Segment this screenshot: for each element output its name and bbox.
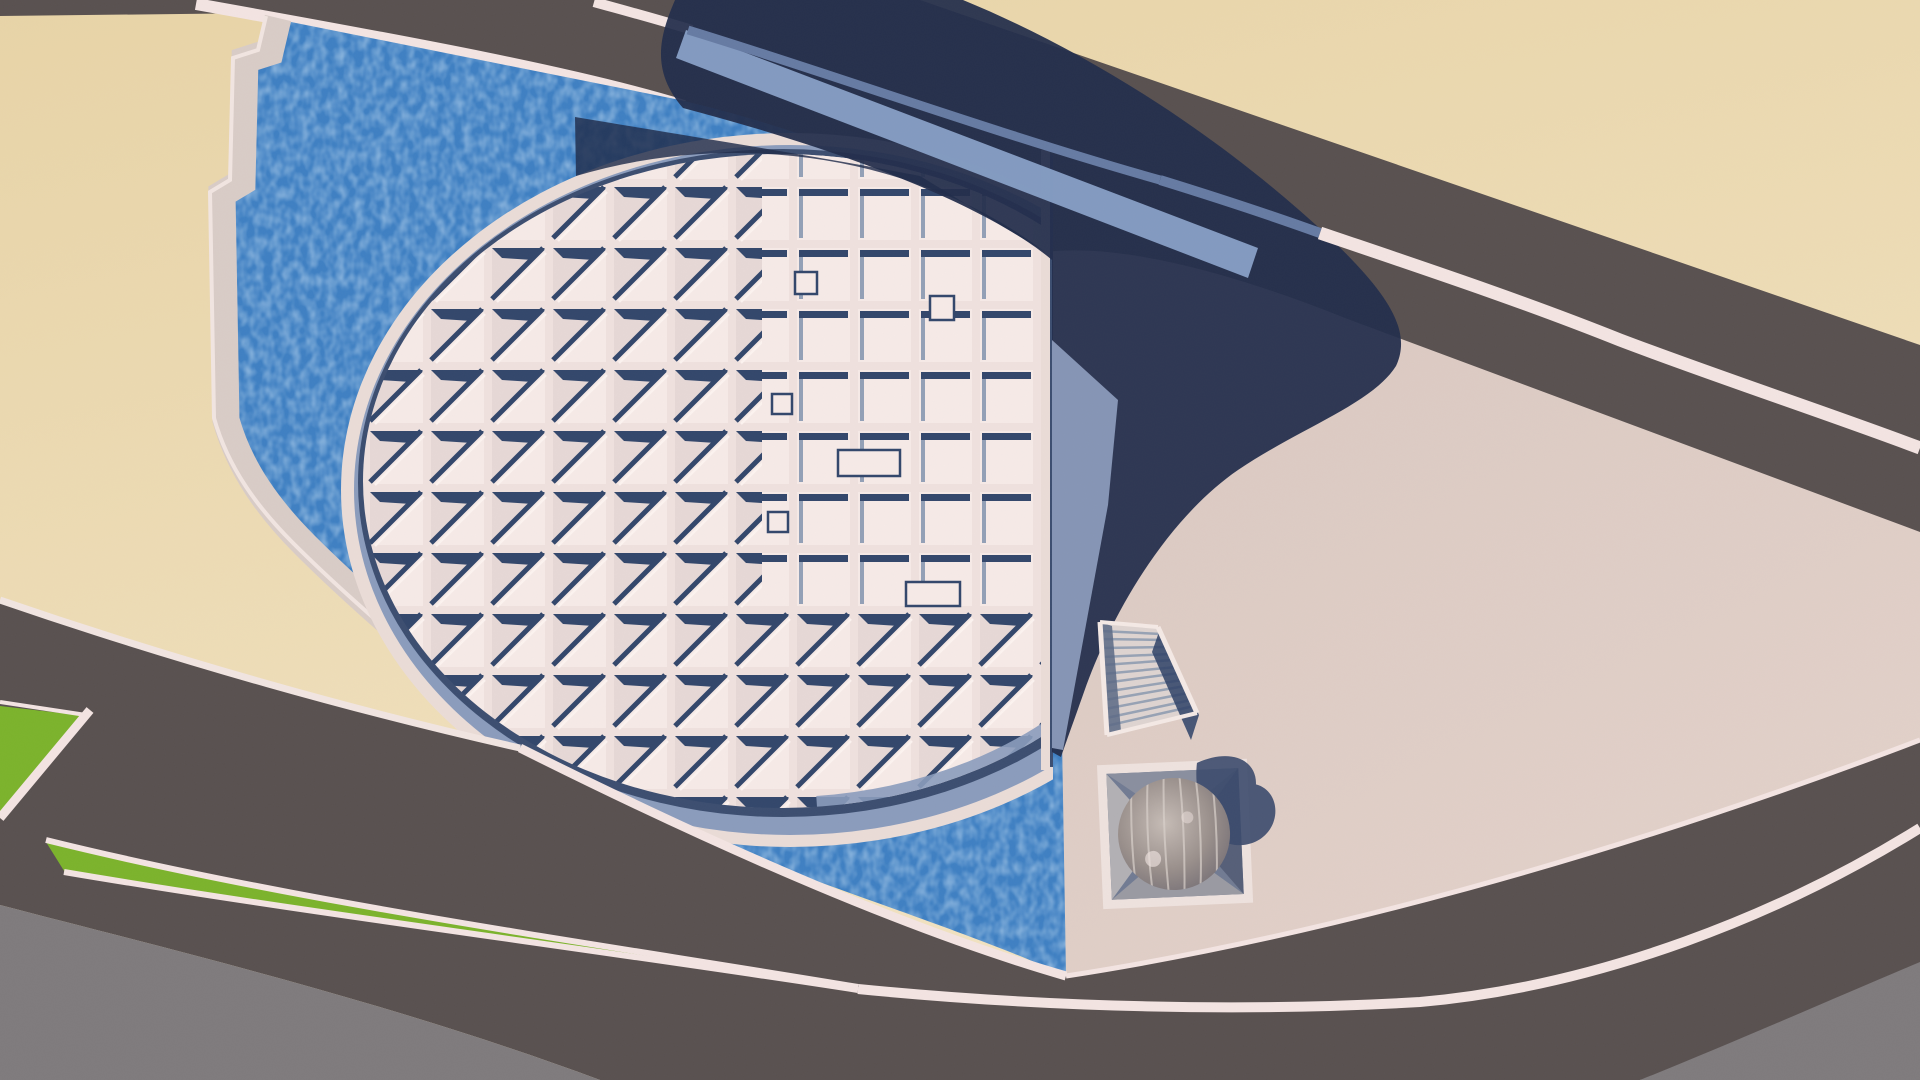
site-plan-rendering (0, 0, 1920, 1080)
grain-overlay (0, 0, 1920, 1080)
rendering-viewport (0, 0, 1920, 1080)
